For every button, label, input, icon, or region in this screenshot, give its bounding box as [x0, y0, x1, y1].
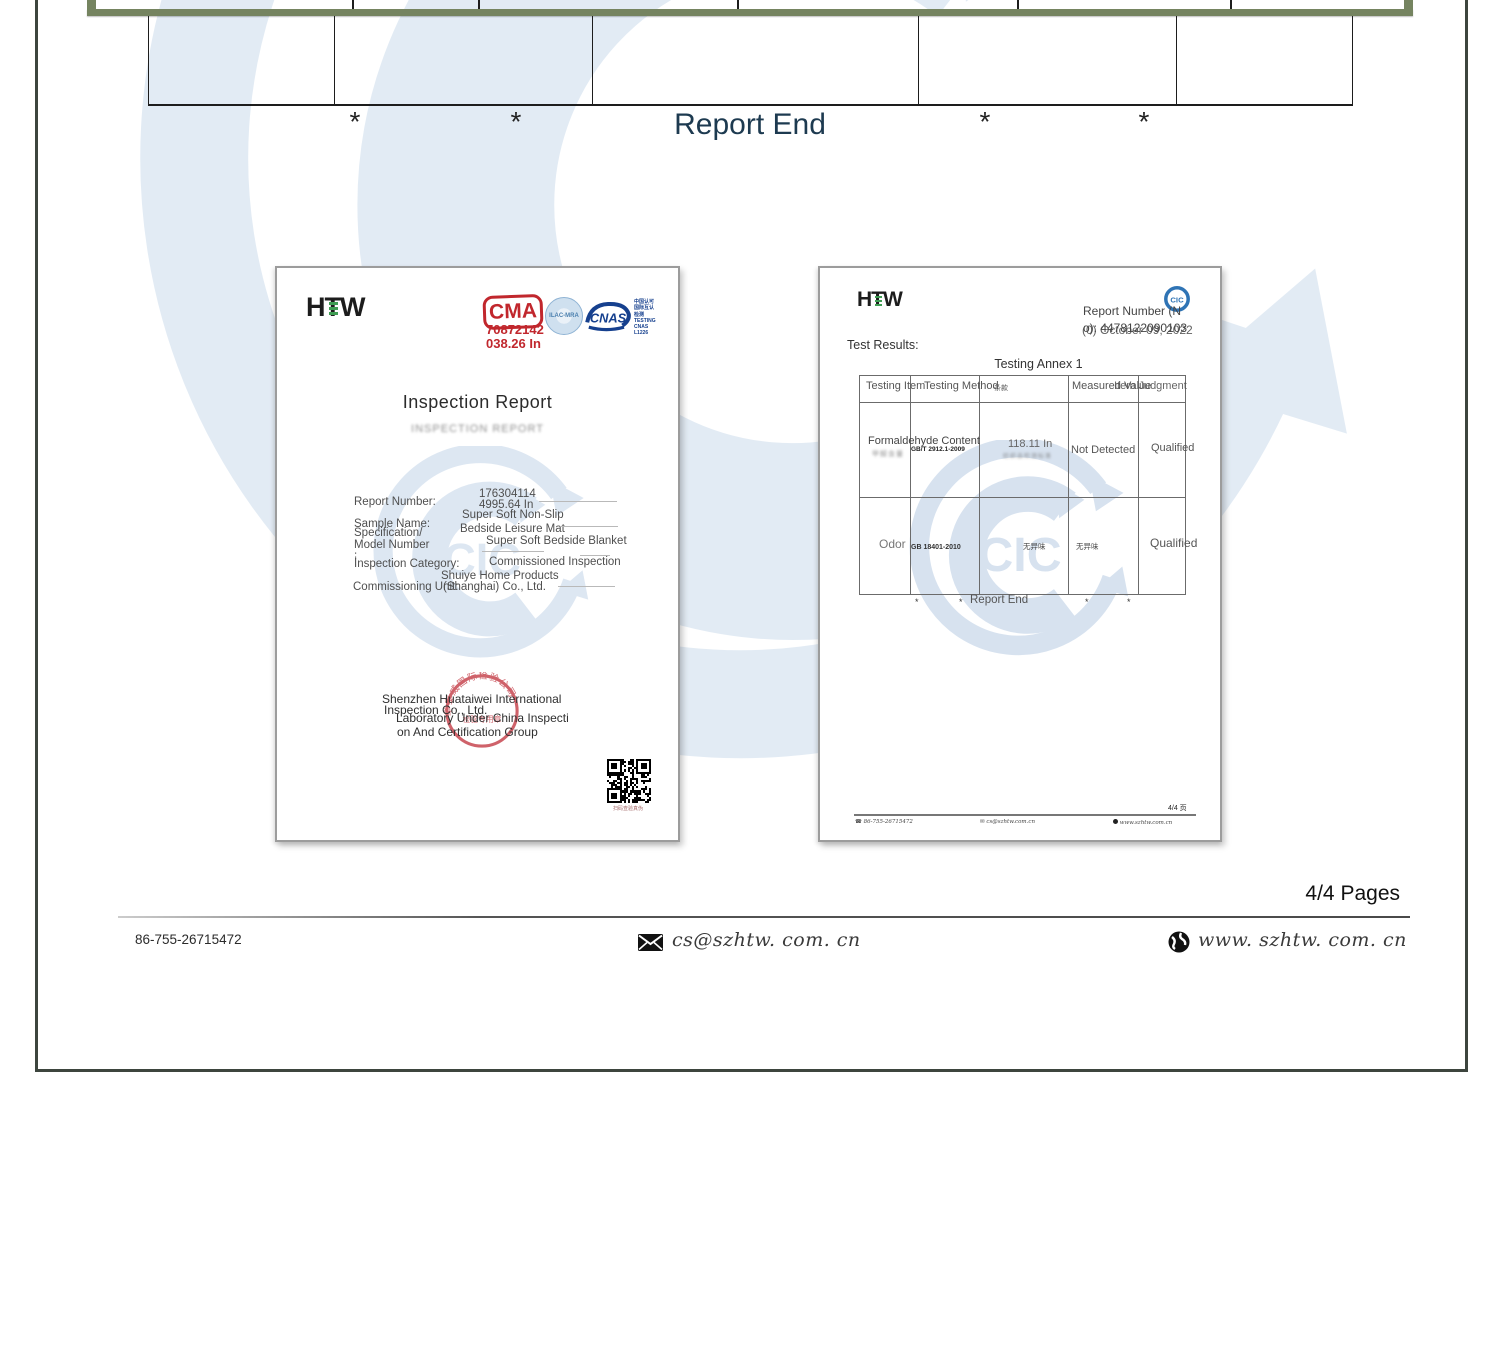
field-label: İnspection Category:: [354, 558, 459, 570]
field-value: Super Soft Bedside Blanket: [486, 535, 627, 547]
htw-logo-green-mark: [875, 300, 882, 302]
globe-icon: [1168, 931, 1190, 953]
report-date-overlay: (0) October 09, 2022: [1082, 323, 1193, 337]
table-line: [859, 375, 860, 594]
table-line: [910, 375, 911, 594]
mini-footer-phone: ☎ 86-755-26715472: [855, 819, 913, 825]
field-underline: [558, 586, 615, 587]
report-number-line1: Report Number (N: [1083, 304, 1181, 318]
cell-row-divider: [1352, 16, 1353, 105]
cic-watermark-right-doc: CIC: [905, 440, 1135, 670]
cnas-caption: 中国认可 国际互认 检测 TESTING CNAS L1226: [634, 299, 660, 337]
mini-asterisk: *: [959, 597, 963, 607]
cell-judgment: Qualified: [1151, 442, 1194, 454]
cell-item-cn: 甲醛含量: [872, 449, 904, 459]
cell-testing-item: Odor: [879, 537, 906, 551]
mail-icon: ✉: [980, 819, 985, 825]
col-header-cn: 条款: [994, 383, 1008, 393]
mini-footer-website: www.szhtw.com.cn: [1113, 819, 1172, 826]
company-line: on And Certification Group: [397, 725, 538, 739]
footer-website: www. szhtw. com. cn: [1198, 929, 1407, 951]
cma-number: 70872142 038.26 In: [486, 323, 544, 350]
page-border-bottom: [35, 1069, 1468, 1072]
table-line: [1185, 375, 1186, 594]
svg-text:CNAS: CNAS: [590, 310, 627, 325]
table-line: [859, 402, 1186, 403]
field-underline: [539, 501, 617, 502]
globe-icon: [1113, 819, 1118, 824]
htw-logo: HTW: [306, 292, 364, 323]
mini-report-end: Report End: [970, 594, 1028, 606]
company-line: Laboratory Under China Inspecti: [396, 711, 569, 725]
green-table-border: [87, 9, 1413, 16]
cell-measured: 118.11 In: [1008, 438, 1052, 450]
page-border-right: [1465, 0, 1468, 1072]
qr-code: [607, 759, 651, 803]
field-underline: [560, 526, 618, 527]
htw-logo-green-mark: [329, 302, 338, 305]
asterisk: *: [511, 106, 522, 138]
cell-method: GB/T 2912.1-2009: [911, 446, 965, 453]
mini-footer-email: ✉ cs@szhtw.com.cn: [980, 819, 1035, 825]
col-header: Testing Item: [866, 380, 925, 392]
test-results-label: Test Results:: [847, 338, 919, 352]
col-header: Item Judgment: [1114, 380, 1187, 392]
envelope-icon: [638, 934, 663, 951]
mini-asterisk: *: [1085, 597, 1089, 607]
cell-value: Not Detected: [1071, 444, 1135, 456]
htw-logo-green-mark: [329, 307, 338, 310]
cell-measured: 无异味: [1023, 541, 1046, 552]
green-table-border-stub: [87, 0, 96, 9]
cell-row-divider: [1176, 16, 1177, 105]
table-line: [859, 497, 1186, 498]
inspection-report-cover-page: CIC HTW CMA 70872142 038.26 In ILAC-MRA …: [275, 266, 680, 842]
asterisk: *: [350, 106, 361, 138]
report-page: * * Report End * * CIC HTW CMA 70872142 …: [0, 0, 1500, 1360]
field-value: (Shanghai) Co., Ltd.: [443, 581, 546, 593]
mini-asterisk: *: [915, 597, 919, 607]
qr-caption: 扫码查验真伪: [613, 805, 643, 812]
test-results-page: CIC HTW CIC Report Number (N o): 4478122…: [818, 266, 1222, 842]
green-table-border-stub: [1404, 0, 1413, 9]
htw-logo-green-mark: [329, 312, 338, 315]
mini-page-label: 4/4 页: [1168, 803, 1187, 813]
mini-asterisk: *: [1127, 597, 1131, 607]
asterisk: *: [1139, 106, 1150, 138]
ilac-mra-logo: ILAC-MRA: [545, 297, 583, 335]
col-header: Testing Method: [924, 380, 999, 392]
cell-value: 无异味: [1076, 541, 1099, 552]
cell-row-divider: [918, 16, 919, 105]
phone-icon: ☎: [855, 819, 862, 825]
table-line: [859, 375, 1186, 376]
field-underline: [482, 551, 544, 552]
page-border-left: [35, 0, 38, 1072]
annex-title: Testing Annex 1: [820, 357, 1257, 371]
htw-logo-green-mark: [875, 304, 882, 306]
footer-phone: 86-755-26715472: [135, 932, 242, 947]
cell-row-divider: [148, 16, 149, 105]
field-value: Bedside Leisure Mat: [460, 523, 565, 535]
field-label: Report Number:: [354, 496, 436, 508]
htw-logo: HTW: [857, 288, 902, 312]
footer-email: cs@szhtw. com. cn: [672, 929, 861, 951]
table-line: [1138, 375, 1139, 594]
mini-footer-line: [854, 814, 1196, 816]
cnas-logo: CNAS: [584, 300, 632, 332]
doc-subtitle: INSPECTION REPORT: [277, 423, 678, 435]
cell-judgment: Qualified: [1150, 536, 1197, 550]
report-end-text: Report End: [674, 108, 826, 142]
cell-row-bottom: [148, 104, 1353, 106]
table-line: [979, 375, 980, 594]
field-label: Specification/: [354, 527, 422, 539]
field-value: Commissioned Inspection: [489, 556, 621, 568]
field-label: Model Number: [354, 539, 429, 551]
asterisk: *: [980, 106, 991, 138]
cell-method: GB 18401-2010: [911, 544, 961, 551]
svg-text:CIC: CIC: [978, 528, 1061, 582]
field-value: Super Soft Non-Slip: [462, 509, 564, 521]
htw-logo-green-mark: [875, 296, 882, 298]
cell-row-divider: [592, 16, 593, 105]
table-line: [1068, 375, 1069, 594]
field-underline: [580, 555, 610, 556]
page-number: 4/4 Pages: [1240, 882, 1400, 906]
cell-row-divider: [334, 16, 335, 105]
footer-line: [118, 916, 1410, 918]
doc-title: Inspection Report: [277, 392, 678, 413]
cell-measured-cn: 纺织品检测标准: [1003, 451, 1052, 460]
